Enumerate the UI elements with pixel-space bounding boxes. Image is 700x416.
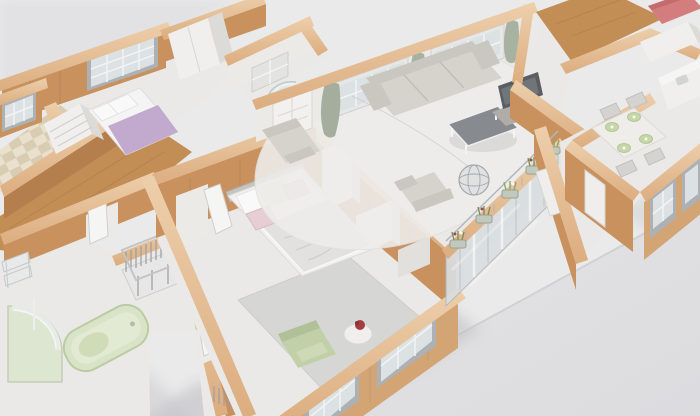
- screenshot-root: [0, 0, 700, 416]
- floorplan-render: [0, 0, 700, 416]
- vignette: [0, 0, 700, 416]
